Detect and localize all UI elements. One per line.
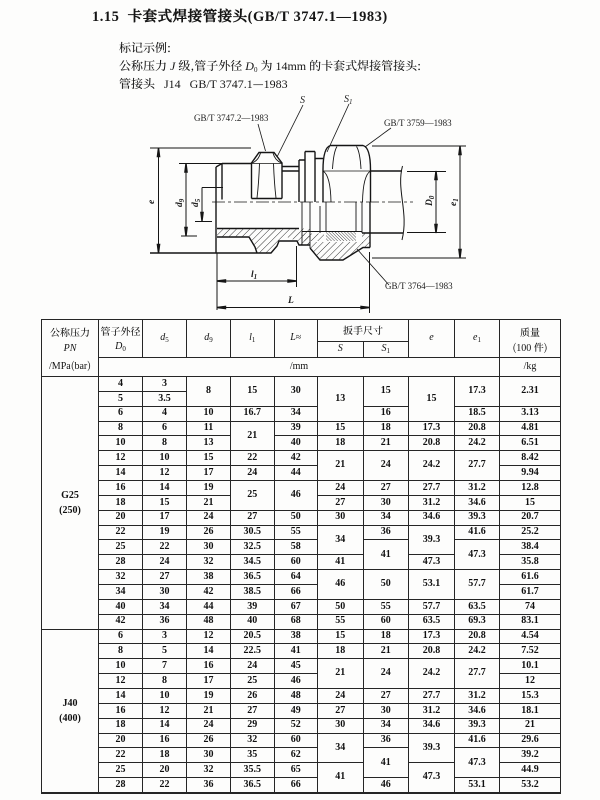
svg-text:e1: e1 bbox=[449, 198, 460, 206]
svg-text:d9: d9 bbox=[175, 198, 186, 207]
svg-text:GB/T 3747.2—1983: GB/T 3747.2—1983 bbox=[194, 113, 269, 123]
svg-text:GB/T 3764—1983: GB/T 3764—1983 bbox=[385, 281, 453, 291]
svg-text:GB/T 3759—1983: GB/T 3759—1983 bbox=[384, 118, 452, 128]
svg-text:l1: l1 bbox=[251, 270, 257, 281]
svg-text:d5: d5 bbox=[191, 198, 202, 207]
svg-text:D0: D0 bbox=[425, 195, 436, 207]
svg-text:L: L bbox=[287, 296, 294, 306]
svg-text:e: e bbox=[147, 199, 157, 204]
svg-text:S1: S1 bbox=[344, 94, 353, 106]
svg-text:S: S bbox=[300, 95, 305, 106]
